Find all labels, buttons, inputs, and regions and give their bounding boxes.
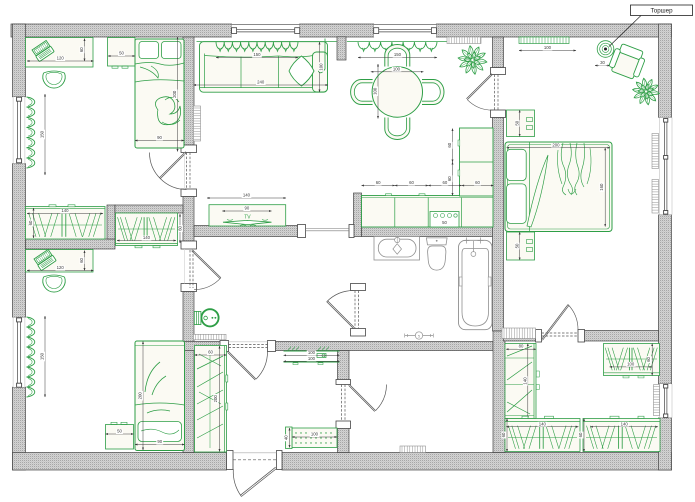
svg-text:240: 240: [257, 80, 265, 85]
svg-text:100: 100: [308, 350, 316, 355]
svg-text:150: 150: [40, 352, 45, 360]
svg-text:100: 100: [544, 45, 552, 50]
svg-text:200: 200: [138, 392, 143, 400]
svg-text:60: 60: [208, 350, 213, 355]
svg-text:140: 140: [143, 235, 151, 240]
svg-text:90: 90: [157, 439, 162, 444]
svg-text:60: 60: [409, 180, 414, 185]
svg-text:150: 150: [253, 52, 261, 57]
svg-text:60: 60: [447, 176, 452, 181]
svg-text:60: 60: [79, 47, 84, 52]
svg-text:TV: TV: [244, 215, 251, 221]
svg-text:100: 100: [319, 63, 324, 71]
svg-text:100: 100: [627, 361, 635, 366]
svg-text:140: 140: [243, 193, 251, 198]
svg-text:80: 80: [519, 344, 524, 349]
svg-text:50: 50: [119, 51, 124, 56]
svg-text:140: 140: [621, 421, 629, 426]
svg-text:120: 120: [57, 265, 65, 270]
svg-text:40: 40: [284, 435, 289, 440]
svg-text:160: 160: [599, 183, 604, 191]
svg-text:60: 60: [475, 180, 480, 185]
svg-text:50: 50: [117, 429, 122, 434]
svg-text:Торшер: Торшер: [650, 8, 673, 15]
svg-text:120: 120: [57, 56, 65, 61]
svg-text:140: 140: [539, 421, 547, 426]
svg-text:100: 100: [311, 432, 319, 437]
svg-text:200: 200: [172, 90, 177, 98]
svg-text:200: 200: [213, 395, 218, 403]
svg-text:60: 60: [501, 432, 506, 437]
svg-text:60: 60: [578, 432, 583, 437]
svg-text:90: 90: [157, 135, 162, 140]
svg-text:100: 100: [393, 66, 401, 71]
svg-text:60: 60: [447, 142, 452, 147]
svg-text:60: 60: [79, 258, 84, 263]
svg-text:100: 100: [308, 356, 316, 361]
svg-text:30: 30: [600, 60, 605, 65]
svg-text:60: 60: [646, 357, 651, 362]
svg-text:100: 100: [373, 87, 378, 95]
svg-text:90: 90: [245, 206, 250, 211]
svg-text:140: 140: [61, 208, 69, 213]
svg-text:60: 60: [376, 180, 381, 185]
svg-text:140: 140: [522, 377, 527, 385]
svg-text:50: 50: [514, 120, 519, 125]
svg-text:50: 50: [514, 243, 519, 248]
svg-text:60: 60: [178, 226, 183, 231]
svg-text:150: 150: [40, 130, 45, 138]
svg-text:60: 60: [28, 220, 33, 225]
svg-text:50: 50: [442, 220, 447, 225]
svg-text:200: 200: [552, 142, 560, 147]
svg-text:150: 150: [394, 52, 402, 57]
